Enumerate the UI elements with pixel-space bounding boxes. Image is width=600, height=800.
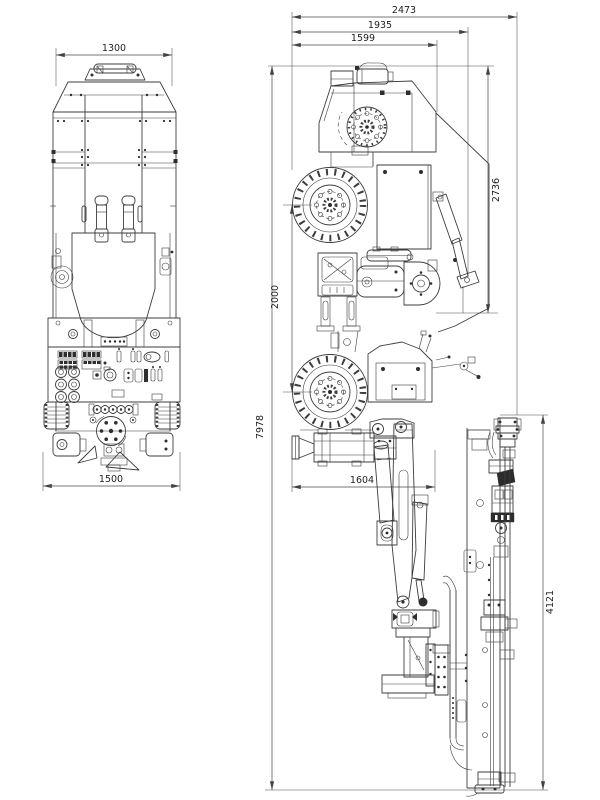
rear-roof-slope: [436, 113, 489, 164]
side-boom: [370, 419, 428, 608]
feed-mount-flange: [435, 645, 448, 695]
plan-crossmember: [48, 318, 180, 347]
dim-label-1599: 1599: [351, 33, 375, 44]
plan-view: 1300: [43, 43, 180, 491]
fan-shroud: [404, 262, 440, 305]
side-dim-2736: 2736: [436, 66, 502, 313]
plan-hood: [53, 82, 176, 112]
plan-tire-left: [44, 402, 69, 429]
dim-label-2473: 2473: [392, 5, 416, 16]
plan-roof-handle: [85, 64, 145, 80]
dim-label-1604: 1604: [350, 475, 374, 486]
boom-cylinder-upper: [374, 445, 394, 523]
dim-label-1300: 1300: [102, 43, 126, 54]
side-rear-panel: [373, 152, 431, 249]
engine-block: [357, 266, 404, 297]
plan-wing-right: [106, 452, 139, 470]
side-engine-deck: [317, 247, 440, 352]
side-stabilizer: [433, 192, 479, 288]
side-view: 2473 1935 1599 7978 2000 2736 4121: [255, 5, 556, 796]
drawing-sheet: 1300: [0, 0, 600, 800]
side-feed-beam: [443, 418, 521, 796]
feed-top-plate: [494, 418, 521, 447]
side-flywheel: [338, 107, 387, 147]
dim-label-1500: 1500: [99, 474, 123, 485]
plan-wing-left: [78, 446, 97, 463]
plan-tire-right: [155, 402, 180, 429]
drawing-canvas: 1300: [0, 0, 600, 800]
plan-body: [50, 95, 178, 318]
dim-label-2000: 2000: [270, 285, 281, 309]
side-knuckle-mount: [382, 610, 467, 698]
side-rear-body: [300, 331, 481, 430]
side-drifter: [292, 429, 396, 466]
plan-gauges: [56, 367, 80, 403]
side-dims-top: 2473 1935 1599: [292, 5, 517, 415]
dim-label-1935: 1935: [368, 20, 392, 31]
plan-cab: [51, 233, 173, 338]
boom-cylinder-lower: [412, 502, 427, 580]
plan-control-panel: [48, 347, 180, 403]
feed-lower-clamp: [481, 600, 517, 642]
dim-label-2736: 2736: [491, 178, 502, 202]
feed-foot: [466, 772, 504, 796]
dim-label-7978: 7978: [255, 415, 266, 439]
feed-drifter-carriage: [489, 460, 515, 557]
operator-console: [318, 253, 357, 296]
dim-label-4121: 4121: [545, 590, 556, 614]
side-dim-7978: 7978: [255, 66, 272, 790]
plan-lift-cylinders: [82, 196, 142, 242]
